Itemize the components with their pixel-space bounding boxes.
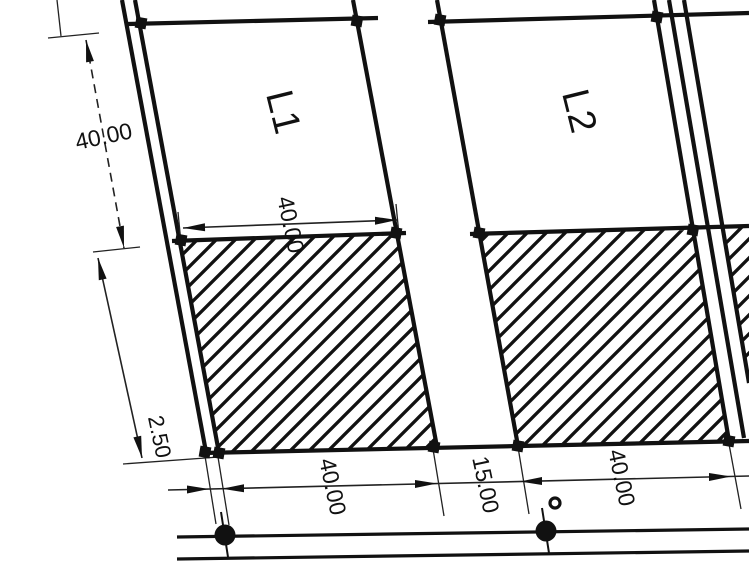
corner-marker (687, 224, 700, 237)
corner-marker (199, 446, 212, 459)
ext-line (433, 449, 444, 516)
dim-strip-width-text: 2.50 (143, 413, 176, 460)
corner-marker (723, 435, 736, 448)
lot1-label: L1 (257, 86, 308, 139)
dim-lot2-frontage-text: 40.00 (603, 447, 640, 509)
hatch-area-lot1 (180, 233, 437, 453)
dim-arrow (222, 484, 244, 492)
corner-marker (512, 440, 525, 453)
road-edge-top-line (177, 529, 749, 537)
dim-left-lower-line (98, 258, 142, 458)
lot2-left-boundary-line (437, 0, 518, 446)
point-marker (550, 498, 560, 508)
monument-marker-left (215, 525, 236, 546)
dim-arrow (116, 226, 124, 248)
dim-lot1-frontage-text: 40.00 (314, 456, 351, 518)
lot2-rear-line (428, 13, 749, 22)
dim-road-gap-text: 15.00 (467, 454, 504, 516)
corner-marker (473, 227, 486, 240)
dim-bottom-chain-line (168, 476, 749, 490)
lot1-rear-line (128, 18, 378, 24)
corner-marker (213, 447, 226, 460)
corner-marker (651, 11, 664, 24)
ext-line (218, 457, 229, 525)
road-edge-bottom-line (177, 551, 749, 559)
ext-line (57, 0, 61, 36)
dim-arrow (187, 486, 209, 494)
monument-marker-right (536, 521, 557, 542)
survey-plat-drawing: L1 L2 40.00 40.00 2.50 40.00 15.00 40.00 (0, 0, 749, 562)
dim-left-depth-text: 40.00 (73, 117, 135, 154)
dim-arrow (709, 473, 731, 481)
dim-arrow (98, 258, 107, 280)
hatch-area-lot2 (479, 230, 729, 446)
ext-line (205, 456, 216, 524)
ext-line (123, 457, 219, 464)
corner-marker (175, 234, 188, 247)
dim-arrow (133, 436, 142, 458)
ext-line (48, 33, 99, 38)
dim-arrow (86, 40, 94, 62)
corner-marker (434, 14, 447, 27)
corner-marker (390, 227, 403, 240)
dim-arrow (415, 480, 437, 488)
lot2-label: L2 (553, 85, 604, 138)
ext-line (93, 247, 140, 252)
corner-marker (135, 17, 148, 30)
plat-canvas: L1 L2 40.00 40.00 2.50 40.00 15.00 40.00 (0, 0, 749, 562)
corner-marker (351, 15, 364, 28)
corner-marker (428, 441, 441, 454)
